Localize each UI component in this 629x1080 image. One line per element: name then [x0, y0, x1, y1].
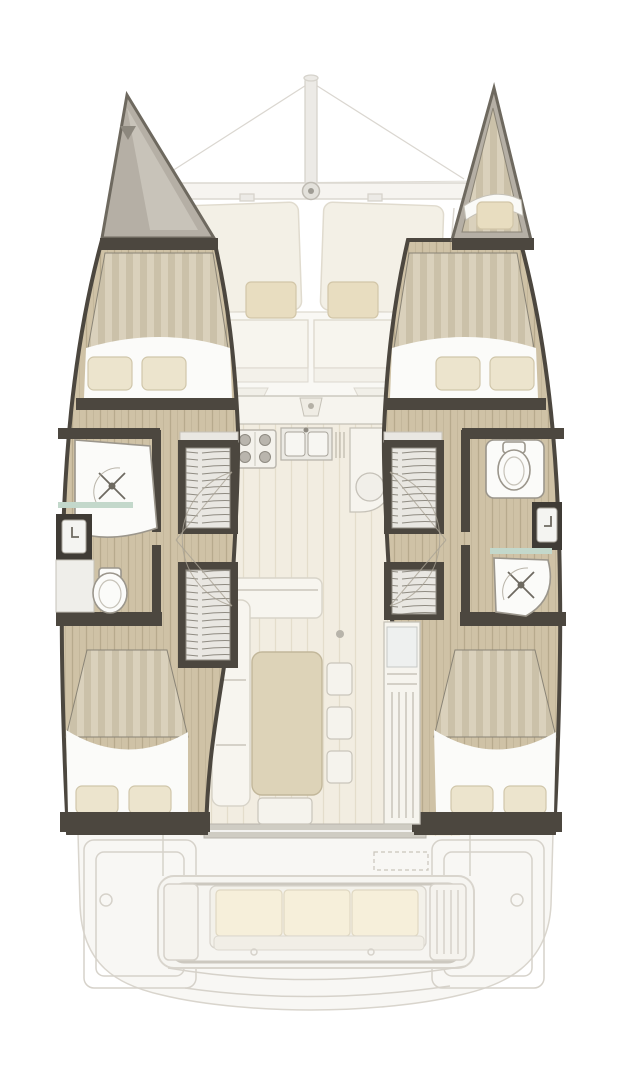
mast-fitting-icon	[303, 183, 320, 200]
stove	[234, 430, 276, 468]
cleat-right	[368, 194, 382, 201]
pillow	[436, 357, 480, 390]
saloon-table	[252, 652, 322, 795]
bathroom-wall-inner-upper	[461, 430, 470, 532]
bowsprit-cap	[304, 75, 318, 81]
starboard-aft-duvet	[434, 650, 556, 737]
starboard-stairs-upper	[392, 448, 436, 528]
starboard-forward-cabin-sill	[386, 398, 546, 410]
pillow	[451, 786, 493, 814]
port-stairs-lower	[186, 570, 230, 660]
starboard-aft-bulkhead	[412, 812, 562, 832]
starboard-vanity	[532, 502, 562, 550]
starboard-bow-cabin	[452, 88, 534, 250]
pillow	[76, 786, 118, 814]
starboard-forward-bulkhead	[452, 238, 534, 250]
starboard-stairs-lower	[392, 570, 436, 614]
backrest-cushion-left	[246, 282, 296, 318]
stool-3	[327, 751, 352, 783]
stove-burner-icon	[240, 435, 251, 446]
table-lamp	[336, 630, 344, 638]
stove-burner-icon	[260, 435, 271, 446]
glass-partition	[490, 548, 552, 554]
bathroom-wall-top	[58, 428, 160, 439]
galley-sink	[281, 428, 332, 461]
aft-bench	[210, 886, 426, 955]
port-aft-duvet	[66, 650, 188, 737]
port-forward-cabin-sill	[76, 398, 236, 410]
sink-basin-icon	[285, 432, 305, 456]
stove-burner-icon	[260, 452, 271, 463]
pillow	[129, 786, 171, 814]
cabinet-mirror-panel	[387, 627, 417, 667]
toilet-icon	[498, 442, 530, 490]
port-forward-bulkhead	[100, 238, 218, 250]
cockpit-module-left	[164, 884, 198, 960]
bench-cushion-3	[352, 890, 418, 936]
pillow	[490, 357, 534, 390]
pillow	[142, 357, 186, 390]
port-stairs-upper	[186, 448, 230, 528]
bench-cushion-1	[216, 890, 282, 936]
pillow	[88, 357, 132, 390]
catamaran-floor-plan	[0, 0, 629, 1080]
forepeak-cushion	[477, 202, 513, 229]
stool-2	[327, 707, 352, 739]
backrest-cushion-right	[328, 282, 378, 318]
aft-deck	[78, 833, 553, 1010]
pillow	[504, 786, 546, 814]
sink-basin-icon	[537, 508, 557, 542]
bench-cushion-2	[284, 890, 350, 936]
bathroom-wall-top	[462, 428, 564, 439]
stove-burner-icon	[240, 452, 251, 463]
cleat-left	[240, 194, 254, 201]
starboard-companionway	[384, 432, 446, 620]
bench-front-edge	[214, 936, 424, 950]
faucet-icon	[304, 428, 309, 433]
port-forward-duvet	[88, 253, 228, 348]
bathroom-wall-bottom	[56, 612, 162, 626]
glass-partition	[58, 502, 133, 508]
counter-basin	[356, 473, 384, 501]
starboard-forward-duvet	[394, 253, 534, 348]
stool-1	[327, 663, 352, 695]
port-vanity	[56, 514, 92, 560]
port-wc-cabinet	[56, 560, 94, 612]
bowsprit-pole	[305, 78, 317, 188]
cockpit-module-right	[430, 884, 466, 960]
stool-4	[258, 798, 312, 824]
saloon-cabinet	[384, 622, 420, 824]
port-aft-bulkhead	[60, 812, 210, 832]
sink-basin-icon	[308, 432, 328, 456]
